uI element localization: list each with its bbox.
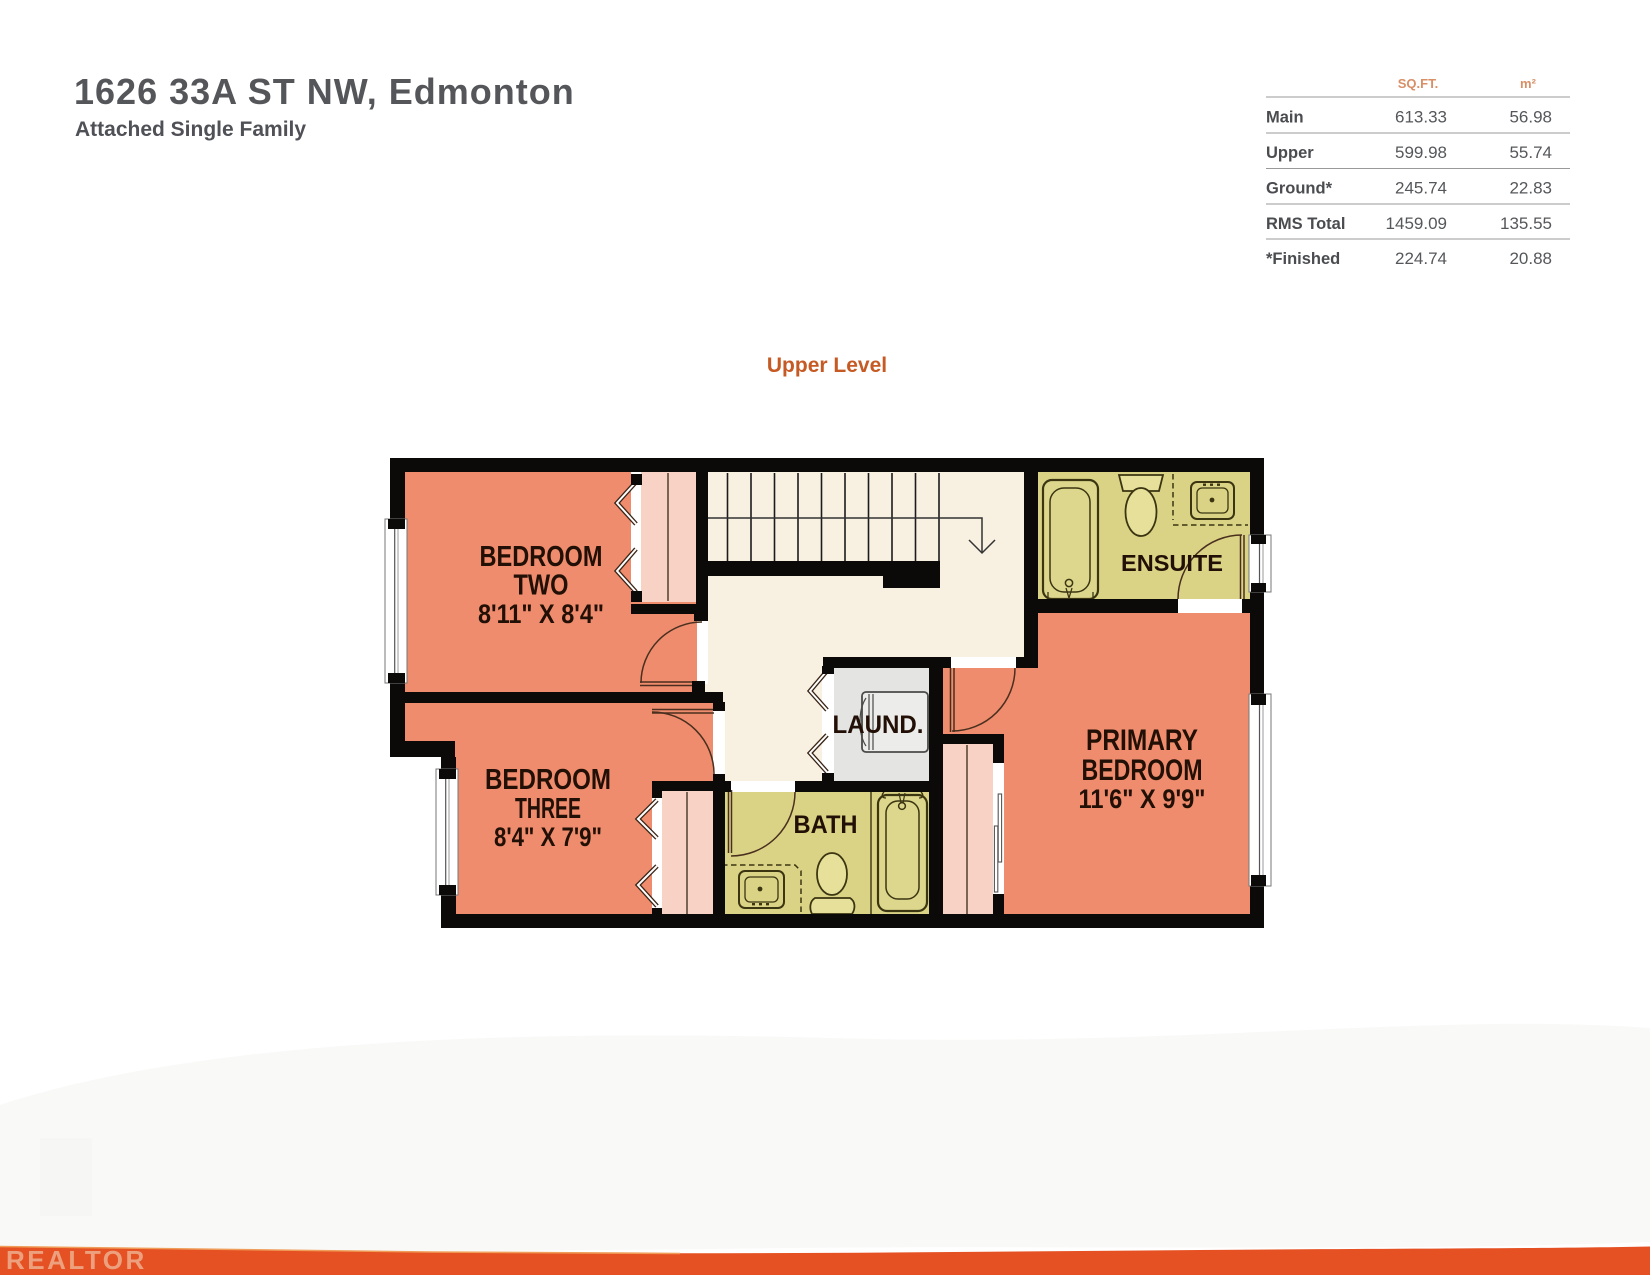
svg-text:RMS Total: RMS Total <box>1266 215 1345 233</box>
svg-text:613.33: 613.33 <box>1395 108 1447 127</box>
svg-text:8'11" X 8'4": 8'11" X 8'4" <box>478 599 604 629</box>
svg-text:LAUND.: LAUND. <box>833 711 924 739</box>
svg-text:245.74: 245.74 <box>1395 179 1447 198</box>
svg-text:ENSUITE: ENSUITE <box>1121 550 1223 576</box>
svg-text:SQ.FT.: SQ.FT. <box>1398 76 1438 91</box>
svg-text:m²: m² <box>1520 76 1537 91</box>
svg-text:135.55: 135.55 <box>1500 214 1552 233</box>
svg-text:55.74: 55.74 <box>1509 143 1552 162</box>
svg-text:1626 33A ST NW, Edmonton: 1626 33A ST NW, Edmonton <box>74 71 575 112</box>
svg-text:11'6" X 9'9": 11'6" X 9'9" <box>1079 784 1206 814</box>
svg-text:8'4" X 7'9": 8'4" X 7'9" <box>494 822 602 852</box>
svg-text:224.74: 224.74 <box>1395 249 1447 268</box>
svg-text:PRIMARY: PRIMARY <box>1086 724 1198 757</box>
svg-text:BATH: BATH <box>794 811 858 839</box>
svg-text:BEDROOM: BEDROOM <box>480 541 603 573</box>
svg-text:1459.09: 1459.09 <box>1386 214 1447 233</box>
svg-text:TWO: TWO <box>514 570 569 602</box>
svg-text:BEDROOM: BEDROOM <box>1082 754 1203 787</box>
svg-text:THREE: THREE <box>515 793 581 825</box>
svg-text:599.98: 599.98 <box>1395 143 1447 162</box>
svg-text:56.98: 56.98 <box>1509 108 1552 127</box>
svg-text:Upper Level: Upper Level <box>767 354 887 377</box>
svg-text:20.88: 20.88 <box>1509 249 1552 268</box>
svg-text:REALTOR: REALTOR <box>6 1245 147 1275</box>
svg-text:22.83: 22.83 <box>1509 179 1552 198</box>
svg-text:BEDROOM: BEDROOM <box>485 764 611 796</box>
svg-text:Attached Single Family: Attached Single Family <box>75 118 306 141</box>
svg-text:Ground*: Ground* <box>1266 180 1333 198</box>
svg-text:*Finished: *Finished <box>1266 250 1340 268</box>
svg-text:Main: Main <box>1266 109 1304 127</box>
svg-text:Upper: Upper <box>1266 144 1314 162</box>
